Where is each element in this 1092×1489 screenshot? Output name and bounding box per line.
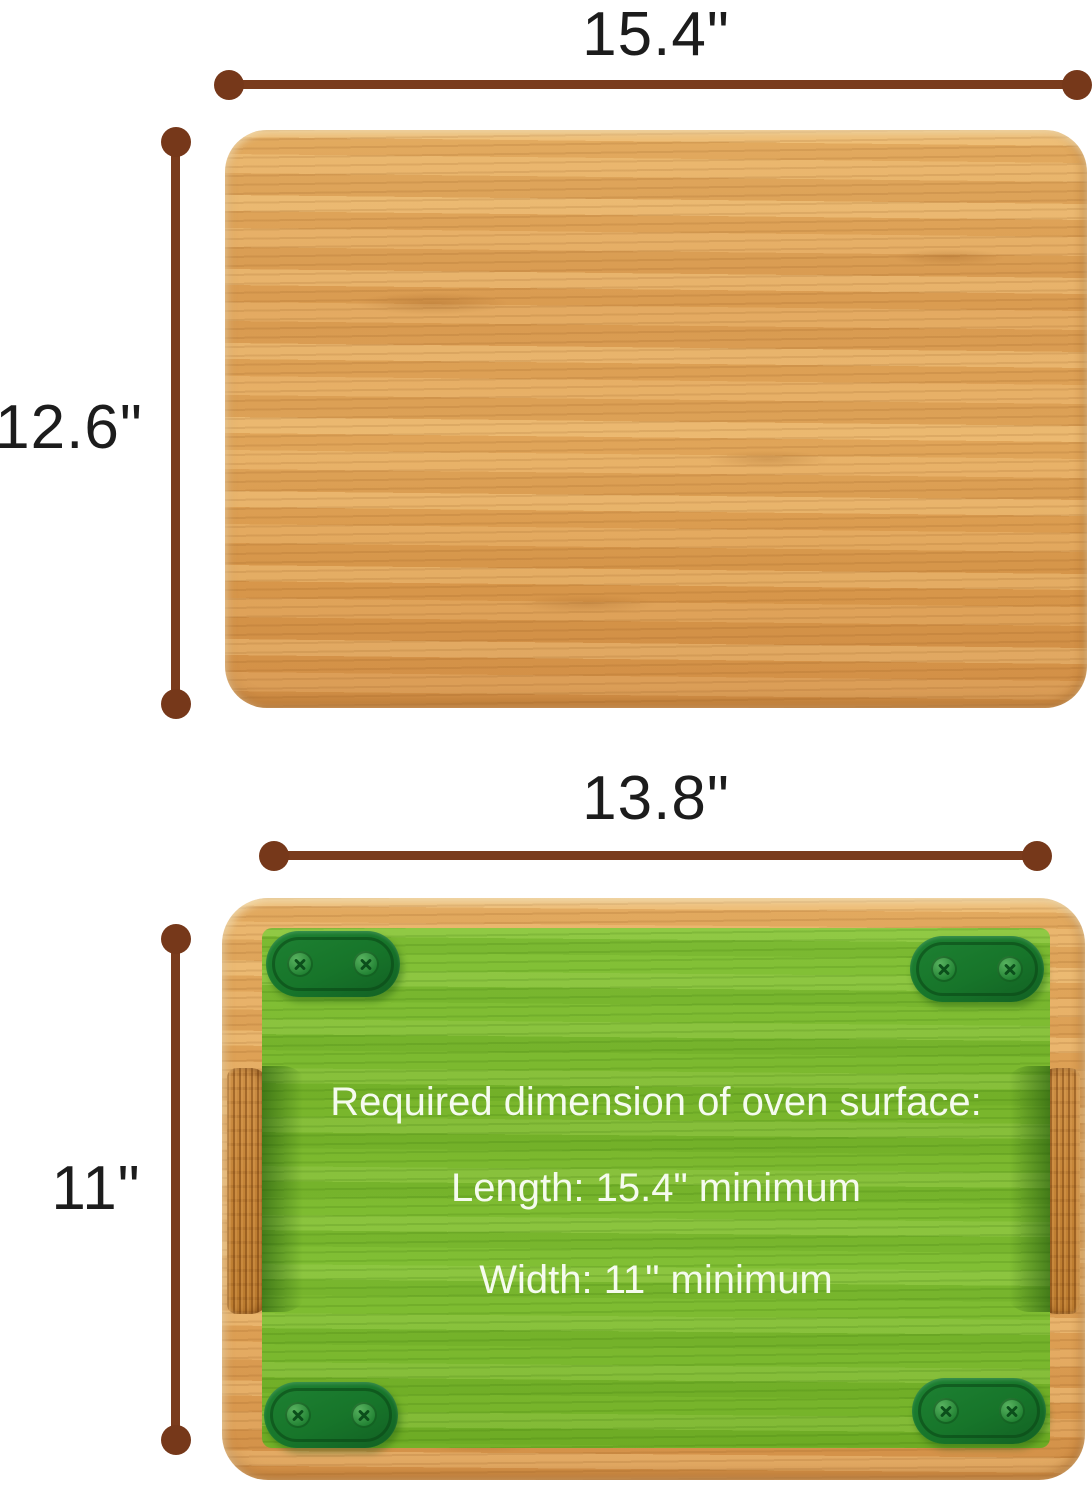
bottom-board-width-dimension-line [273, 851, 1038, 860]
dimension-endpoint-dot [214, 70, 244, 100]
top-board-height-label: 12.6" [0, 397, 149, 459]
non-slip-foot [910, 936, 1044, 1002]
screw-icon [351, 1402, 377, 1428]
bottom-board-height-label: 11" [16, 1158, 176, 1220]
dimension-endpoint-dot [161, 1425, 191, 1455]
oven-surface-requirement-title: Required dimension of oven surface: [262, 1080, 1050, 1124]
top-board-width-label: 15.4" [346, 4, 966, 66]
product-dimension-diagram: 15.4" 12.6" 13.8" 11" [0, 0, 1092, 1489]
non-slip-foot [266, 931, 400, 997]
screw-icon [931, 956, 957, 982]
top-board-height-dimension-line [171, 141, 180, 705]
screw-icon [285, 1402, 311, 1428]
bottom-board-width-label: 13.8" [346, 768, 966, 830]
bamboo-board-top-view [225, 130, 1087, 708]
oven-surface-length-requirement: Length: 15.4" minimum [262, 1166, 1050, 1210]
screw-icon [997, 956, 1023, 982]
bamboo-board-bottom-view: Required dimension of oven surface: Leng… [222, 898, 1085, 1480]
bottom-board-height-dimension-line [171, 938, 180, 1441]
screw-icon [287, 951, 313, 977]
screw-icon [353, 951, 379, 977]
dimension-endpoint-dot [161, 924, 191, 954]
dimension-endpoint-dot [161, 127, 191, 157]
dimension-endpoint-dot [1022, 841, 1052, 871]
oven-surface-overlay: Required dimension of oven surface: Leng… [262, 928, 1050, 1448]
dimension-endpoint-dot [259, 841, 289, 871]
screw-icon [933, 1398, 959, 1424]
top-board-width-dimension-line [228, 80, 1078, 89]
screw-icon [999, 1398, 1025, 1424]
non-slip-foot [912, 1378, 1046, 1444]
oven-surface-width-requirement: Width: 11" minimum [262, 1258, 1050, 1302]
dimension-endpoint-dot [161, 689, 191, 719]
dimension-endpoint-dot [1062, 70, 1092, 100]
non-slip-foot [264, 1382, 398, 1448]
